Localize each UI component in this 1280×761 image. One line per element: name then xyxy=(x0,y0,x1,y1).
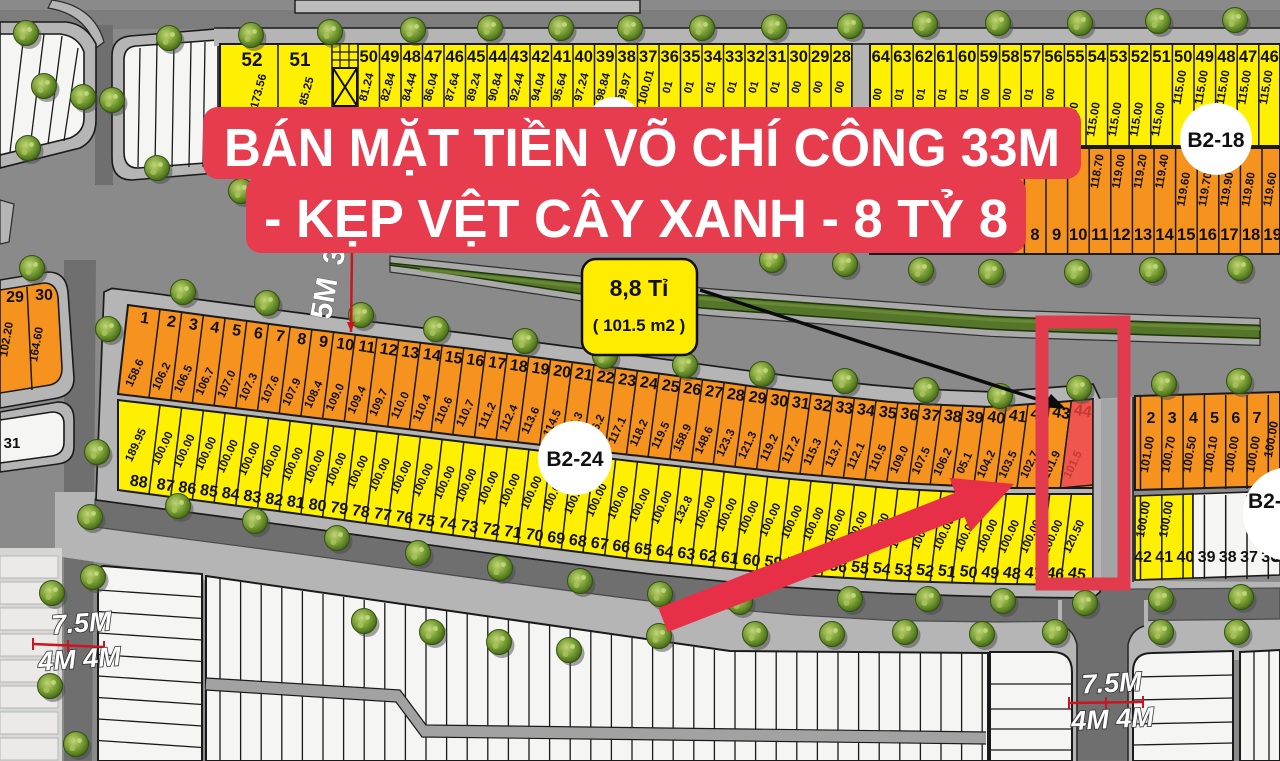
svg-text:10: 10 xyxy=(335,335,355,355)
svg-text:31: 31 xyxy=(4,435,21,452)
svg-text:20: 20 xyxy=(552,362,572,382)
svg-text:30: 30 xyxy=(769,392,789,412)
svg-text:31: 31 xyxy=(791,394,811,414)
svg-text:36: 36 xyxy=(661,48,679,66)
svg-text:29: 29 xyxy=(811,48,829,66)
svg-text:48: 48 xyxy=(1217,48,1235,66)
svg-text:45: 45 xyxy=(467,48,485,66)
svg-text:55: 55 xyxy=(1066,48,1084,66)
svg-text:57: 57 xyxy=(1023,48,1041,66)
svg-text:88: 88 xyxy=(129,472,149,492)
svg-text:53: 53 xyxy=(1109,48,1127,66)
svg-text:5: 5 xyxy=(1210,410,1219,427)
svg-text:41: 41 xyxy=(1155,549,1173,566)
svg-text:34: 34 xyxy=(704,48,723,66)
svg-text:16: 16 xyxy=(1199,226,1217,244)
svg-text:58: 58 xyxy=(1001,48,1019,66)
svg-text:75: 75 xyxy=(416,511,436,531)
svg-text:41: 41 xyxy=(553,48,571,66)
svg-text:61: 61 xyxy=(936,48,954,66)
svg-text:40: 40 xyxy=(1177,549,1195,566)
svg-text:46: 46 xyxy=(1260,48,1278,66)
svg-text:12: 12 xyxy=(378,340,398,360)
svg-text:4M 4M: 4M 4M xyxy=(1070,702,1155,736)
svg-text:79: 79 xyxy=(329,499,349,519)
svg-text:39: 39 xyxy=(964,408,984,428)
svg-text:67: 67 xyxy=(589,534,609,554)
svg-text:70: 70 xyxy=(524,526,544,546)
svg-text:( 101.5 m2 ): ( 101.5 m2 ) xyxy=(593,316,686,335)
svg-text:63: 63 xyxy=(676,544,696,564)
svg-text:00: 00 xyxy=(979,87,993,101)
svg-text:29: 29 xyxy=(6,289,24,306)
svg-text:- KẸP VỆT CÂY XANH - 8 TỶ 8: - KẸP VỆT CÂY XANH - 8 TỶ 8 xyxy=(264,188,1008,249)
svg-text:84: 84 xyxy=(220,485,240,505)
svg-text:12: 12 xyxy=(1112,226,1130,244)
svg-text:53: 53 xyxy=(893,561,913,581)
svg-text:69: 69 xyxy=(546,529,566,549)
svg-text:23: 23 xyxy=(617,371,637,391)
svg-text:80: 80 xyxy=(307,496,327,516)
svg-text:8,8 Tỉ: 8,8 Tỉ xyxy=(610,275,669,301)
svg-text:47: 47 xyxy=(424,48,442,66)
svg-text:42: 42 xyxy=(532,48,550,66)
svg-text:18: 18 xyxy=(509,357,529,377)
svg-text:16: 16 xyxy=(465,351,485,371)
svg-text:37: 37 xyxy=(1240,549,1258,566)
svg-text:11: 11 xyxy=(1091,226,1108,244)
svg-text:47: 47 xyxy=(1239,48,1257,66)
svg-text:68: 68 xyxy=(568,532,588,552)
svg-text:28: 28 xyxy=(833,48,851,66)
svg-text:33: 33 xyxy=(725,48,743,66)
svg-text:4: 4 xyxy=(1189,410,1198,427)
svg-text:35: 35 xyxy=(682,48,700,66)
svg-text:11: 11 xyxy=(357,338,376,357)
svg-text:39: 39 xyxy=(596,48,614,66)
svg-text:00: 00 xyxy=(1001,87,1015,101)
svg-text:37: 37 xyxy=(639,48,657,66)
svg-text:7.5M: 7.5M xyxy=(1081,666,1143,699)
svg-text:50: 50 xyxy=(1174,48,1192,66)
svg-text:78: 78 xyxy=(351,502,371,522)
svg-text:9: 9 xyxy=(1052,226,1061,244)
svg-text:52: 52 xyxy=(915,561,935,581)
svg-text:60: 60 xyxy=(741,551,761,571)
svg-text:73: 73 xyxy=(459,517,479,537)
svg-text:3: 3 xyxy=(1168,410,1177,427)
svg-text:29: 29 xyxy=(747,389,767,409)
svg-text:54: 54 xyxy=(1088,48,1107,66)
svg-text:36: 36 xyxy=(899,405,919,425)
svg-text:66: 66 xyxy=(611,537,631,557)
svg-text:81: 81 xyxy=(286,493,306,513)
svg-text:44: 44 xyxy=(1073,402,1093,422)
svg-text:41: 41 xyxy=(1008,407,1028,427)
svg-text:62: 62 xyxy=(915,48,933,66)
svg-text:14: 14 xyxy=(1155,226,1174,244)
svg-text:38: 38 xyxy=(618,48,636,66)
svg-text:74: 74 xyxy=(437,514,457,534)
svg-text:B2-2: B2-2 xyxy=(1248,490,1280,513)
svg-text:01: 01 xyxy=(957,87,971,101)
svg-text:50: 50 xyxy=(360,48,378,66)
svg-text:54: 54 xyxy=(872,560,892,580)
svg-text:33: 33 xyxy=(834,399,854,419)
svg-text:21: 21 xyxy=(574,365,594,385)
svg-text:42: 42 xyxy=(1134,549,1152,566)
svg-text:32: 32 xyxy=(812,396,832,416)
svg-text:38: 38 xyxy=(1219,549,1237,566)
svg-text:B2-24: B2-24 xyxy=(546,448,604,471)
svg-text:82: 82 xyxy=(264,490,284,510)
svg-text:26: 26 xyxy=(682,380,702,400)
svg-text:15: 15 xyxy=(443,348,463,368)
svg-text:24: 24 xyxy=(639,374,659,394)
svg-text:71: 71 xyxy=(503,523,523,543)
svg-text:48: 48 xyxy=(1002,564,1022,584)
svg-text:38: 38 xyxy=(943,407,963,427)
svg-text:85: 85 xyxy=(199,482,219,502)
svg-text:55: 55 xyxy=(850,558,870,578)
svg-text:B2-18: B2-18 xyxy=(1187,129,1245,152)
svg-text:83: 83 xyxy=(242,487,262,507)
svg-text:63: 63 xyxy=(893,48,911,66)
svg-text:60: 60 xyxy=(958,48,976,66)
svg-text:14: 14 xyxy=(422,346,442,366)
svg-text:48: 48 xyxy=(403,48,421,66)
svg-text:56: 56 xyxy=(1044,48,1062,66)
svg-text:01: 01 xyxy=(893,87,907,101)
svg-text:72: 72 xyxy=(481,520,501,540)
svg-text:51: 51 xyxy=(937,562,957,582)
svg-text:19: 19 xyxy=(530,360,550,380)
svg-text:27: 27 xyxy=(704,383,724,403)
svg-text:31: 31 xyxy=(768,48,786,66)
svg-text:51: 51 xyxy=(289,50,311,71)
svg-text:32: 32 xyxy=(747,48,765,66)
svg-text:52: 52 xyxy=(1131,48,1149,66)
svg-text:7: 7 xyxy=(1253,410,1262,427)
svg-text:51: 51 xyxy=(1152,48,1170,66)
svg-text:30: 30 xyxy=(790,48,808,66)
svg-text:59: 59 xyxy=(980,48,998,66)
svg-text:8: 8 xyxy=(1030,226,1039,244)
svg-text:44: 44 xyxy=(489,48,508,66)
svg-text:65: 65 xyxy=(633,540,653,560)
svg-text:39: 39 xyxy=(1198,549,1216,566)
svg-text:00: 00 xyxy=(871,87,885,101)
svg-text:19: 19 xyxy=(1263,226,1280,244)
svg-text:40: 40 xyxy=(575,48,593,66)
svg-text:6: 6 xyxy=(1231,410,1240,427)
svg-text:43: 43 xyxy=(510,48,528,66)
svg-text:64: 64 xyxy=(654,542,674,562)
svg-text:4M 4M: 4M 4M xyxy=(36,641,122,677)
svg-text:76: 76 xyxy=(394,508,414,528)
svg-text:13: 13 xyxy=(400,343,420,363)
svg-text:64: 64 xyxy=(872,48,891,66)
svg-text:35: 35 xyxy=(878,403,898,423)
svg-text:00: 00 xyxy=(1044,87,1058,101)
svg-text:30: 30 xyxy=(35,287,53,304)
svg-text:28: 28 xyxy=(726,386,746,406)
svg-text:10: 10 xyxy=(1069,226,1087,244)
svg-text:49: 49 xyxy=(381,48,399,66)
svg-text:87: 87 xyxy=(155,476,175,496)
svg-text:37: 37 xyxy=(921,406,941,426)
svg-text:61: 61 xyxy=(720,549,740,569)
svg-text:34: 34 xyxy=(856,401,876,421)
svg-text:52: 52 xyxy=(241,50,262,71)
svg-text:17: 17 xyxy=(487,354,507,374)
svg-text:25: 25 xyxy=(660,377,680,397)
svg-text:49: 49 xyxy=(980,563,1000,583)
svg-text:01: 01 xyxy=(1022,87,1036,101)
svg-text:2: 2 xyxy=(1147,410,1156,427)
svg-text:BÁN MẶT TIỀN VÕ CHÍ CÔNG 33M: BÁN MẶT TIỀN VÕ CHÍ CÔNG 33M xyxy=(224,117,1060,178)
svg-text:17: 17 xyxy=(1220,226,1238,244)
svg-text:46: 46 xyxy=(446,48,464,66)
svg-text:62: 62 xyxy=(698,546,718,566)
svg-text:77: 77 xyxy=(372,505,392,525)
svg-text:13: 13 xyxy=(1134,226,1152,244)
svg-text:01: 01 xyxy=(936,87,950,101)
svg-text:18: 18 xyxy=(1242,226,1260,244)
svg-text:01: 01 xyxy=(914,87,928,101)
svg-text:7.5M: 7.5M xyxy=(50,606,112,640)
svg-text:49: 49 xyxy=(1196,48,1214,66)
svg-text:50: 50 xyxy=(958,563,978,583)
svg-text:15: 15 xyxy=(1177,226,1195,244)
